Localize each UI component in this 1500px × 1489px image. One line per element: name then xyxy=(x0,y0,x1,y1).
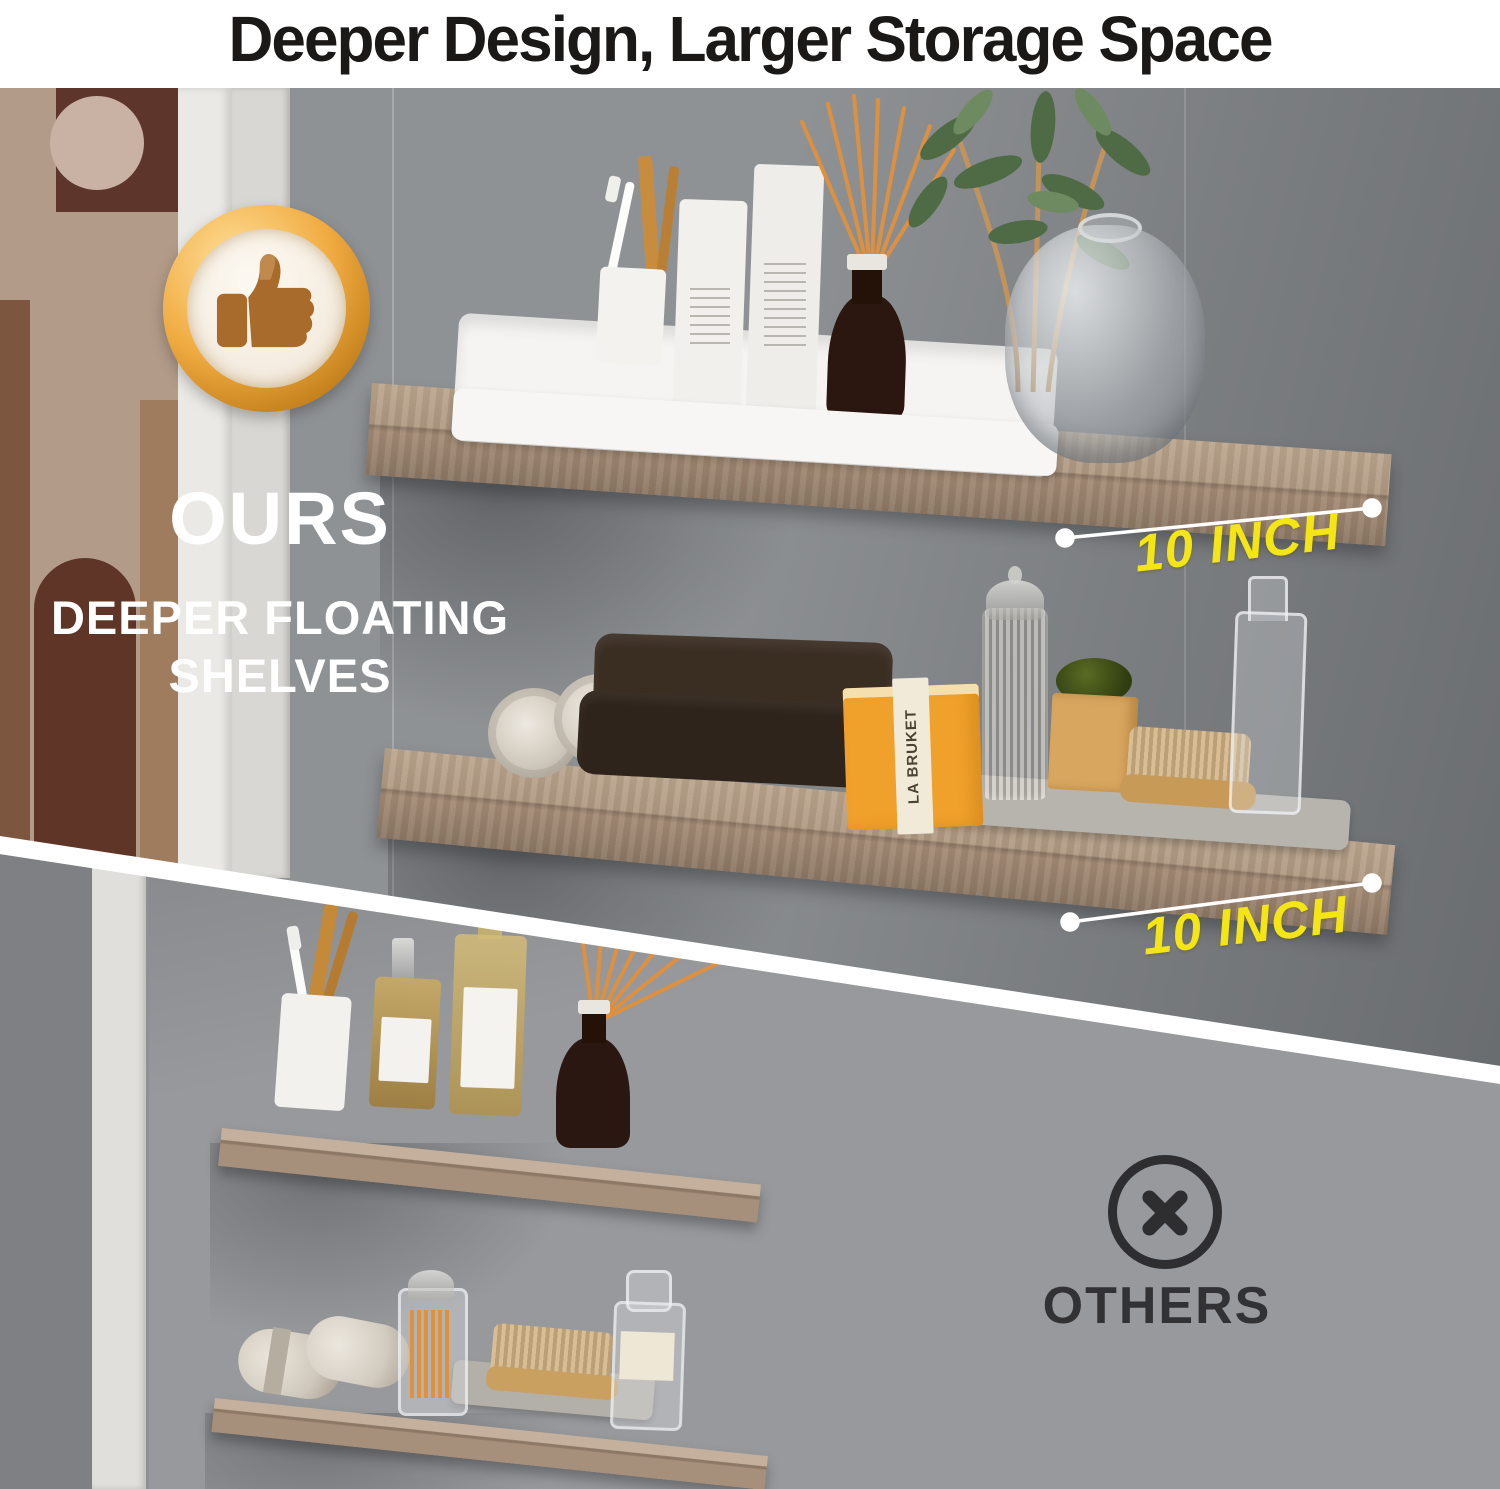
others-heading: OTHERS xyxy=(1007,1276,1307,1336)
soap-box-label: LA BRUKET xyxy=(892,677,933,834)
jar-lid xyxy=(986,580,1044,620)
soap-box-brand-text: LA BRUKET xyxy=(903,708,923,804)
soap-box: LA BRUKET xyxy=(843,684,984,831)
page-title: Deeper Design, Larger Storage Space xyxy=(23,2,1478,76)
wall-corner xyxy=(0,788,92,1489)
jar-knob xyxy=(1008,566,1022,584)
cotton-swabs xyxy=(410,1310,452,1398)
ours-subtitle-line1: DEEPER FLOATING xyxy=(10,590,550,645)
art-shape xyxy=(0,300,30,878)
glass-bottle xyxy=(1228,611,1307,815)
toothbrush-cup xyxy=(596,266,667,365)
product-comparison-graphic: Deeper Design, Larger Storage Space xyxy=(0,0,1500,1489)
bottle-label xyxy=(460,987,517,1089)
reed-diffuser-bottle xyxy=(556,1038,630,1148)
pump-bottle-top xyxy=(392,938,414,982)
art-shape xyxy=(50,96,144,190)
gold-badge xyxy=(163,205,370,412)
glass-vase xyxy=(1005,225,1205,463)
bottle-label xyxy=(764,263,806,353)
ours-subtitle-line2: SHELVES xyxy=(10,648,550,703)
thumbs-up-icon xyxy=(205,245,331,361)
diffuser-label-band xyxy=(578,1000,610,1014)
circle-x-icon xyxy=(1108,1155,1222,1269)
comparison-photo: LA BRUKET OURS DEEPER FLOATING SHELVES xyxy=(0,88,1500,1489)
jar-lid xyxy=(408,1270,454,1300)
bottle-label xyxy=(619,1331,675,1381)
wall-seam xyxy=(146,788,149,1489)
glass-apothecary-jar xyxy=(982,608,1048,800)
bottle-label xyxy=(378,1017,431,1084)
door-trim xyxy=(92,788,146,1489)
bottle-label xyxy=(690,288,730,348)
toothbrush-cup xyxy=(274,993,352,1112)
ours-heading: OURS xyxy=(60,476,500,561)
